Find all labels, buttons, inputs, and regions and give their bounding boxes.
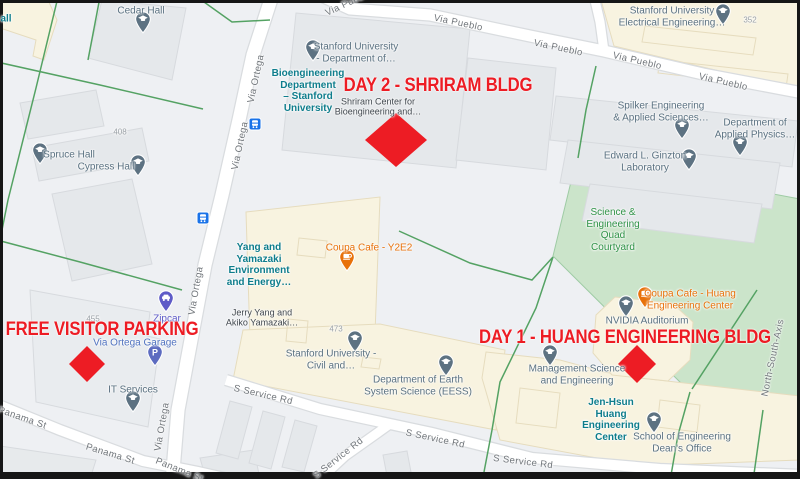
label-line: Department of Earth [364, 375, 472, 387]
label-line: and Engineering [529, 375, 626, 387]
poi-label-bioengineering: BioengineeringDepartment– StanfordUniver… [272, 68, 345, 114]
label-line: University [272, 103, 345, 115]
label-line: Science & [586, 207, 639, 219]
label-line: Akiko Yamazaki… [226, 318, 298, 328]
label-line: Coupa Cafe - Huang [644, 289, 736, 301]
poi-label-management-science: Management Scienceand Engineering [529, 364, 626, 387]
label-line: Cedar Hall [117, 5, 164, 17]
label-line: Engineering Center [644, 300, 736, 312]
label-line: Yamazaki [227, 254, 291, 266]
label-line: Huang [582, 409, 640, 421]
label-line: NVIDIA Auditorium [606, 315, 689, 327]
label-line: Stanford University [314, 42, 398, 54]
eess-pin school-pin-icon[interactable] [439, 355, 454, 376]
poi-label-science-quad: Science &EngineeringQuadCourtyard [586, 207, 639, 253]
poi-label-electrical-engineering: Stanford UniversityElectrical Engineerin… [619, 6, 726, 29]
map-screenshot[interactable]: P [0, 0, 800, 479]
label-line: Center [582, 432, 640, 444]
label-line: Department [272, 80, 345, 92]
annotation-day1-huang: DAY 1 - HUANG ENGINEERING BLDG [479, 327, 771, 349]
building-number: 473 [329, 324, 342, 333]
poi-label-hall-partial: all [0, 13, 11, 25]
label-line: Coupa Cafe - Y2E2 [326, 242, 413, 254]
poi-label-stanford-department: Stanford University- Department of… [314, 42, 398, 65]
poi-label-spruce-hall: Spruce Hall [43, 149, 95, 161]
label-line: School of Engineering [633, 432, 731, 444]
poi-label-ginzton-lab: Edward L. GinztonLaboratory [604, 151, 686, 174]
label-line: Electrical Engineering… [619, 17, 726, 29]
poi-label-jerry-yang: Jerry Yang andAkiko Yamazaki… [226, 308, 298, 329]
label-line: Engineering [582, 420, 640, 432]
label-line: System Science (EESS) [364, 386, 472, 398]
label-line: Laboratory [604, 162, 686, 174]
label-line: Edward L. Ginzton [604, 151, 686, 163]
label-line: - Department of… [314, 53, 398, 65]
building-number: 352 [743, 15, 756, 24]
label-line: Jen-Hsun [582, 397, 640, 409]
poi-label-yang-yamazaki: Yang andYamazakiEnvironmentand Energy… [227, 242, 291, 288]
label-line: Jerry Yang and [226, 308, 298, 318]
label-line: Cypress Hall [78, 161, 135, 173]
label-line: Engineering [586, 219, 639, 231]
label-line: – Stanford [272, 91, 345, 103]
label-line: Yang and [227, 242, 291, 254]
annotation-free-visitor-parking: FREE VISITOR PARKING [6, 319, 199, 341]
label-line: Applied Physics… [715, 129, 796, 141]
label-line: Spruce Hall [43, 149, 95, 161]
poi-label-shriram-center: Shriram Center forBioengineering and… [335, 97, 422, 118]
poi-label-cedar-hall: Cedar Hall [117, 5, 164, 17]
label-line: Quad [586, 230, 639, 242]
poi-label-jen-hsun-huang: Jen-HsunHuangEngineeringCenter [582, 397, 640, 443]
label-line: Shriram Center for [335, 97, 422, 107]
poi-label-applied-physics: Department ofApplied Physics… [715, 118, 796, 141]
poi-label-deans-office: School of EngineeringDean's Office [633, 432, 731, 455]
label-line: Environment [227, 265, 291, 277]
label-line: Civil and… [286, 360, 377, 372]
label-line: Stanford University [619, 6, 726, 18]
map-tiles: P [0, 0, 800, 479]
label-line: Bioengineering [272, 68, 345, 80]
deans-office-pin school-pin-icon[interactable] [647, 412, 662, 433]
label-line: Management Science [529, 364, 626, 376]
label-line: Stanford University - [286, 349, 377, 361]
poi-label-cypress-hall: Cypress Hall [78, 161, 135, 173]
label-line: & Applied Sciences… [613, 112, 709, 124]
poi-label-spilker: Spilker Engineering& Applied Sciences… [613, 101, 709, 124]
label-line: Dean's Office [633, 443, 731, 455]
label-line: and Energy… [227, 277, 291, 289]
poi-label-eess: Department of EarthSystem Science (EESS) [364, 375, 472, 398]
poi-label-stanford-civil: Stanford University -Civil and… [286, 349, 377, 372]
poi-label-it-services: IT Services [108, 384, 158, 396]
poi-label-nvidia-auditorium: NVIDIA Auditorium [606, 315, 689, 327]
label-line: IT Services [108, 384, 158, 396]
poi-label-coupa-cafe-huang: Coupa Cafe - HuangEngineering Center [644, 289, 736, 312]
annotation-day2-shriram: DAY 2 - SHRIRAM BLDG [344, 75, 533, 97]
nvidia-auditorium-pin school-pin-icon[interactable] [619, 296, 634, 317]
building-number: 408 [113, 127, 126, 136]
poi-label-coupa-cafe-y2e2: Coupa Cafe - Y2E2 [326, 242, 413, 254]
label-line: Department of [715, 118, 796, 130]
label-line: Spilker Engineering [613, 101, 709, 113]
label-line: Bioengineering and… [335, 107, 422, 117]
transit-stop-icon[interactable] [197, 212, 209, 224]
label-line: Courtyard [586, 242, 639, 254]
label-line: all [0, 13, 11, 25]
zipcar-pin car-pin-icon[interactable] [159, 291, 174, 312]
